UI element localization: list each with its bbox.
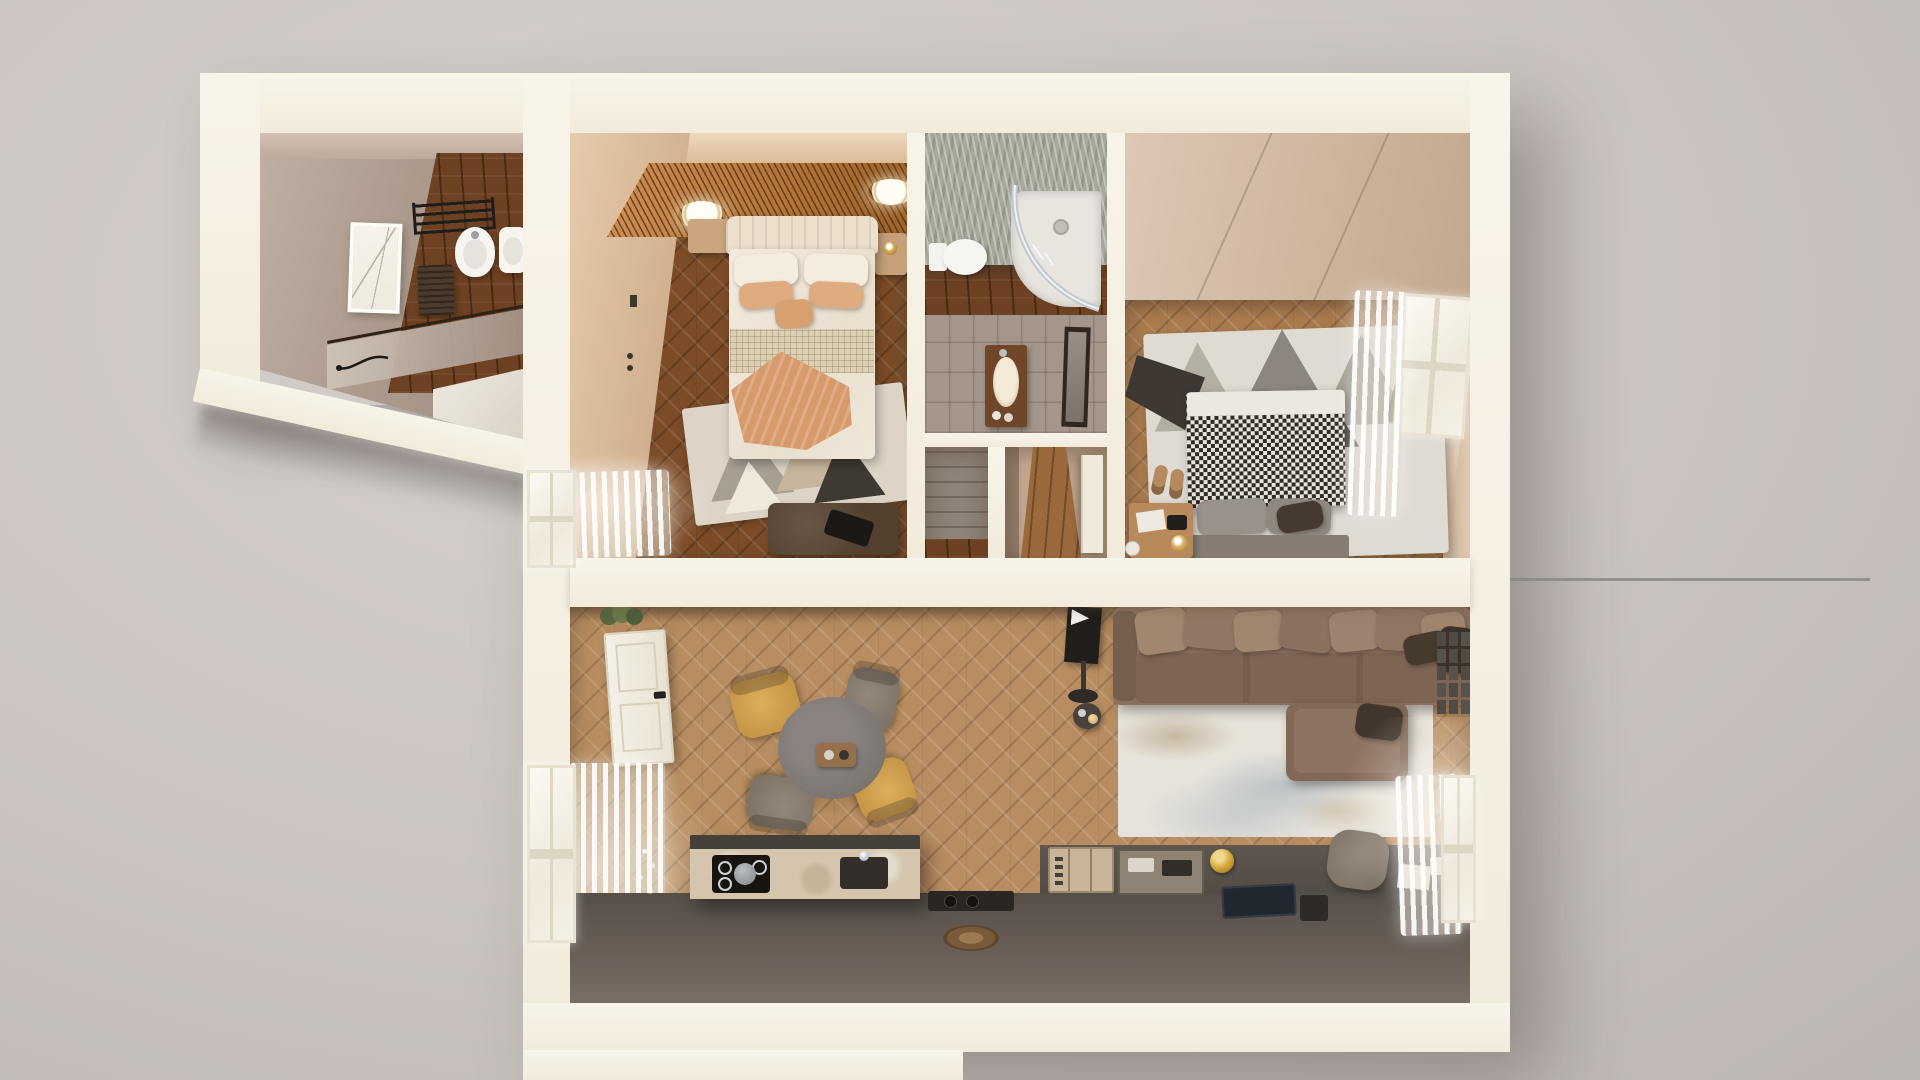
chair-back xyxy=(728,664,791,698)
wall-middle-band xyxy=(570,558,1470,607)
utensil-tray xyxy=(1118,849,1204,895)
clutch-bag xyxy=(823,509,875,548)
soap-item xyxy=(992,411,1001,420)
tv-reflection xyxy=(1071,609,1090,626)
sofa-pillow xyxy=(1133,607,1191,656)
floor-sparkle xyxy=(642,849,647,854)
hallway-door xyxy=(1081,455,1103,553)
bottle xyxy=(944,895,957,908)
burner xyxy=(718,877,732,891)
living-right-window-frame xyxy=(1441,775,1476,923)
soap-item xyxy=(1004,413,1013,422)
front-door xyxy=(603,629,674,767)
ceiling-seam xyxy=(1195,133,1272,302)
door-panel xyxy=(615,642,658,693)
cutlery xyxy=(1055,855,1063,885)
bidet xyxy=(455,227,495,277)
cushion-center xyxy=(774,298,815,330)
kitchen-island xyxy=(690,835,920,899)
cooktop xyxy=(712,855,770,893)
cutlery-organizer xyxy=(1048,847,1114,893)
plant-leaf xyxy=(626,608,643,625)
tray-item-dark xyxy=(1162,860,1192,876)
bottle xyxy=(966,895,979,908)
toilet-annex-seat xyxy=(503,237,523,265)
vanity-sink xyxy=(993,357,1019,407)
nightstand-left xyxy=(688,219,730,253)
door-panel xyxy=(619,702,662,753)
woven-trivet xyxy=(943,925,999,951)
vanity xyxy=(985,345,1027,427)
sofa-pillow xyxy=(1233,609,1286,652)
wood-cabinet xyxy=(417,264,455,315)
sofa-pillow xyxy=(1182,607,1241,651)
door-handle xyxy=(654,691,666,699)
organizer-divider xyxy=(1090,849,1092,891)
salt-shaker xyxy=(824,750,834,760)
camera xyxy=(1167,515,1187,530)
hand-shower-icon xyxy=(336,338,392,374)
bath2-mirror xyxy=(1061,327,1090,428)
room-closet xyxy=(925,447,988,558)
duvet-fold xyxy=(1187,390,1345,417)
room-bedroom-main xyxy=(570,133,907,558)
bed2-headboard xyxy=(1183,535,1349,558)
water-glass xyxy=(1125,541,1140,556)
tray-item-white xyxy=(1128,858,1154,872)
tv-on-pole xyxy=(1064,607,1102,664)
pepper-shaker xyxy=(839,750,849,760)
gold-table-lamp xyxy=(884,242,897,255)
tv-pole xyxy=(1081,661,1086,691)
section-line xyxy=(1510,578,1870,581)
pot xyxy=(734,863,756,885)
organizer-divider xyxy=(1068,849,1070,891)
wall-bathroom-bedroom2 xyxy=(1107,133,1125,558)
toilet-shower-bath xyxy=(929,237,989,277)
tv-base xyxy=(1068,689,1098,703)
sink-faucet xyxy=(859,851,869,861)
gold-lamp xyxy=(1171,535,1188,552)
light-switch xyxy=(630,295,637,307)
gallery-frames xyxy=(1437,632,1446,646)
toilet-bowl xyxy=(943,239,987,275)
wall-closet-divider xyxy=(988,447,1005,558)
laptop xyxy=(1221,883,1297,919)
small-tray xyxy=(1300,895,1328,921)
wall-under-bathroom xyxy=(925,433,1107,447)
sofa-armrest xyxy=(1113,611,1137,701)
ceiling-lamp-right xyxy=(868,179,907,205)
room-bathroom-shower xyxy=(925,133,1107,433)
ceiling-seam xyxy=(1312,133,1389,302)
plant xyxy=(600,607,646,627)
sofa-pillow xyxy=(1328,608,1382,653)
wall-sconce xyxy=(627,353,633,359)
wall-top xyxy=(200,73,1510,133)
side-stool xyxy=(1073,703,1101,729)
burner xyxy=(718,861,732,875)
corner-shower-glass-icon xyxy=(999,183,1103,315)
vanity-faucet xyxy=(999,349,1007,357)
bedroom2-ceiling-panel xyxy=(1125,133,1470,300)
wall-bottom xyxy=(523,1003,1510,1052)
floorplan-render xyxy=(0,0,1920,1080)
room-living-kitchen xyxy=(570,607,1470,1003)
closet-floor xyxy=(925,539,988,558)
framed-art xyxy=(347,222,402,314)
kitchen-floor-counter xyxy=(570,893,1470,1003)
bedroom1-light-pool xyxy=(570,449,720,557)
room-hallway xyxy=(1005,447,1107,558)
room-bedroom-second xyxy=(1125,133,1470,558)
wall-bedroom1-bathroom xyxy=(907,133,925,558)
bench-with-clutch xyxy=(768,503,898,555)
wall-annex-left xyxy=(200,73,260,400)
wall-bottom-step xyxy=(523,1050,963,1080)
dining-table xyxy=(778,697,886,799)
serving-tray xyxy=(816,743,856,767)
hallway-floor xyxy=(1021,447,1081,558)
gold-cup xyxy=(1088,714,1098,724)
living-left-window-frame xyxy=(527,765,576,943)
island-sink xyxy=(840,857,888,889)
bidet-faucet xyxy=(471,231,479,239)
pillow-peach-right xyxy=(808,281,863,310)
sofa-pillow xyxy=(1277,607,1337,655)
chair-back xyxy=(864,795,920,830)
chair-back xyxy=(851,659,902,688)
recessed-tray xyxy=(928,891,1014,911)
hallway-shadow xyxy=(1005,447,1019,558)
mirror-glass xyxy=(1065,332,1086,423)
gray-pillow-left xyxy=(1196,497,1268,537)
papers xyxy=(1136,509,1167,533)
wall-right xyxy=(1470,73,1510,1052)
bedroom2-curtain xyxy=(1347,290,1407,517)
gold-canister xyxy=(1210,849,1234,873)
bidet-bowl xyxy=(463,239,487,269)
bedroom1-window-frame xyxy=(527,470,576,568)
wine-glass xyxy=(1078,709,1086,717)
nightstand-right xyxy=(875,233,907,275)
